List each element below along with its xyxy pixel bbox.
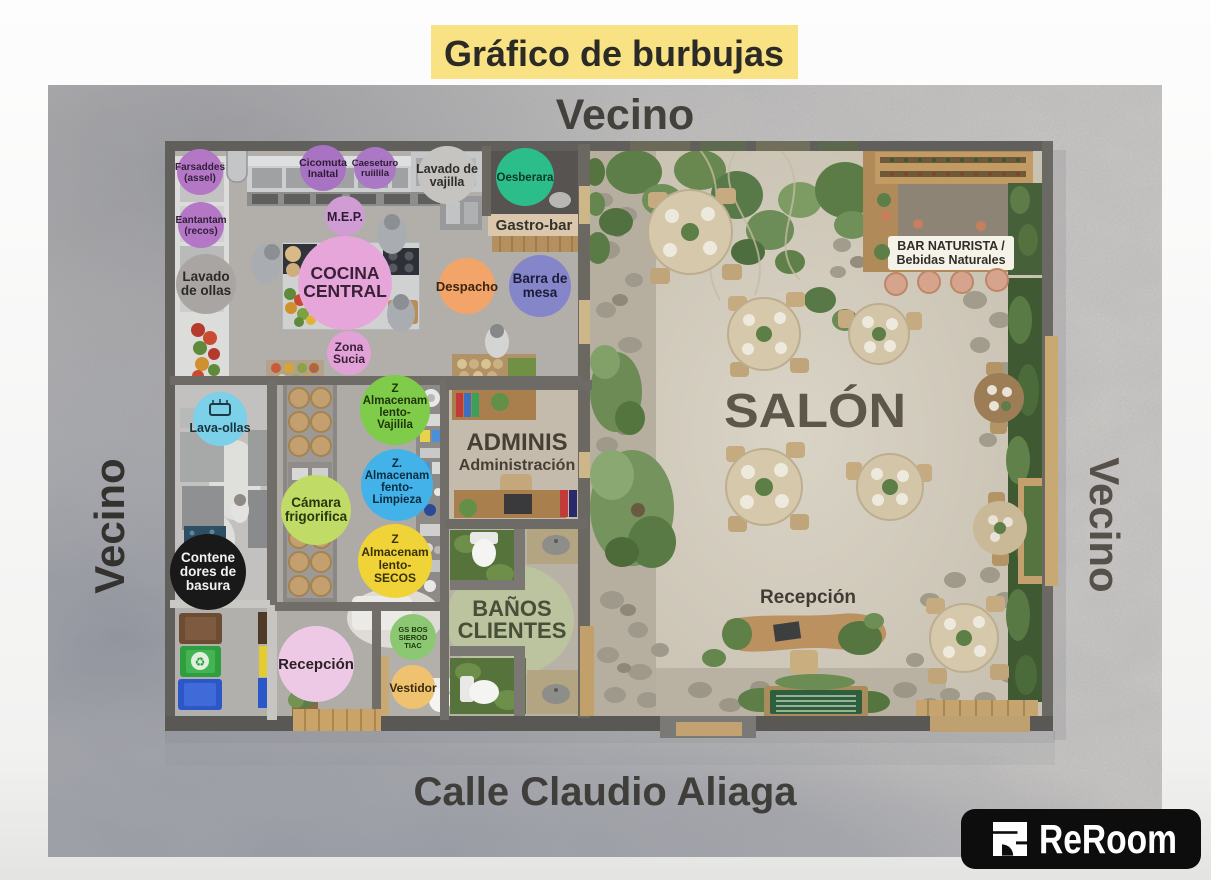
svg-text:Administración: Administración [459,457,575,474]
svg-text:Recepción: Recepción [760,587,856,608]
svg-text:Eantantam: Eantantam [175,215,226,226]
svg-text:lento-: lento- [379,407,410,419]
svg-text:♻: ♻ [195,655,206,669]
svg-text:Vecino: Vecino [1081,457,1128,592]
svg-text:basura: basura [186,578,231,593]
svg-text:TIAC: TIAC [404,641,422,650]
svg-text:Vecino: Vecino [556,91,695,139]
svg-text:Lavado: Lavado [182,269,229,284]
svg-text:Z: Z [391,532,398,546]
svg-text:ruiilila: ruiilila [361,168,390,179]
svg-text:Cámara: Cámara [291,495,341,510]
svg-text:SECOS: SECOS [374,571,416,585]
svg-text:Despacho: Despacho [436,279,498,294]
svg-text:Almacenam: Almacenam [363,395,428,407]
svg-text:COCINA: COCINA [310,263,379,283]
svg-text:Vestidor: Vestidor [389,681,437,695]
svg-text:Bebidas Naturales: Bebidas Naturales [896,253,1005,267]
svg-text:fento-: fento- [381,482,413,494]
svg-text:Recepción: Recepción [278,656,354,673]
svg-text:CENTRAL: CENTRAL [303,281,387,301]
svg-text:Gráfico de burbujas: Gráfico de burbujas [444,33,784,74]
svg-text:Gastro-bar: Gastro-bar [496,217,573,234]
svg-text:Almacenam: Almacenam [361,545,428,559]
svg-text:Almacenam: Almacenam [365,470,430,482]
svg-text:Farsaddes: Farsaddes [175,162,225,173]
svg-text:Lava-ollas: Lava-ollas [189,421,250,435]
svg-text:dores de: dores de [180,564,237,579]
svg-text:Contene: Contene [181,550,235,565]
svg-text:(assel): (assel) [184,173,216,184]
svg-text:de ollas: de ollas [181,283,231,298]
svg-text:(recos): (recos) [184,226,217,237]
svg-text:vajilla: vajilla [430,175,466,189]
svg-text:Barra de: Barra de [513,271,568,286]
svg-text:BAR NATURISTA /: BAR NATURISTA / [897,239,1005,253]
svg-text:Z: Z [391,383,398,395]
svg-text:Limpieza: Limpieza [372,494,422,506]
svg-text:Lavado de: Lavado de [416,162,478,176]
svg-text:lento-: lento- [379,558,412,572]
svg-text:Oesberara: Oesberara [497,172,555,184]
svg-text:frigorifica: frigorifica [285,509,348,524]
svg-text:CLIENTES: CLIENTES [458,618,567,643]
svg-text:ADMINIS: ADMINIS [466,429,567,456]
svg-text:M.E.P.: M.E.P. [327,210,363,224]
svg-text:ReRoom: ReRoom [1039,816,1177,862]
svg-text:Z.: Z. [392,458,402,470]
svg-text:Inaltal: Inaltal [308,168,338,180]
svg-text:Sucia: Sucia [333,352,365,366]
svg-text:SALÓN: SALÓN [724,383,906,438]
svg-text:mesa: mesa [523,285,558,300]
svg-text:Vecino: Vecino [86,458,133,593]
svg-text:Calle Claudio Aliaga: Calle Claudio Aliaga [413,770,797,814]
svg-text:Vajilila: Vajilila [377,419,413,431]
